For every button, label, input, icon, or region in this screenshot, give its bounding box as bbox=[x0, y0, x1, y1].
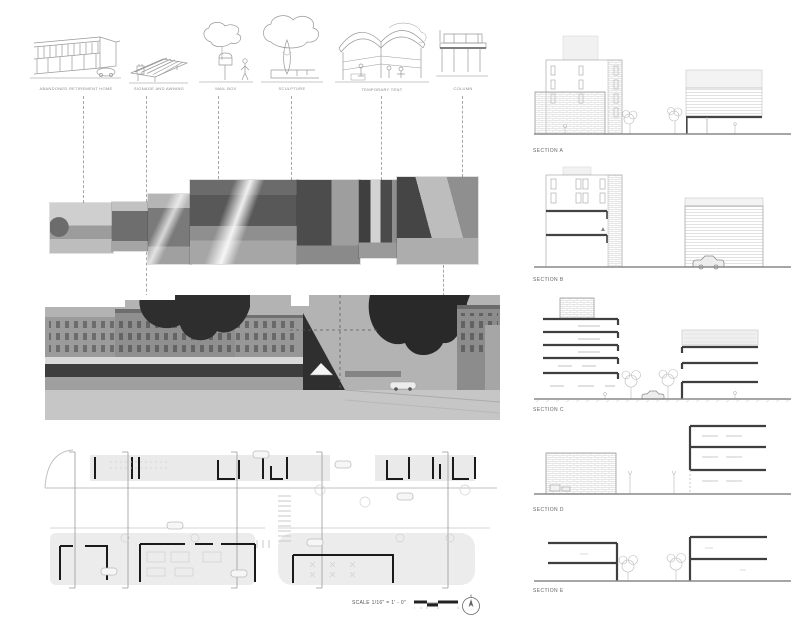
section-c-label: SECTION C bbox=[533, 407, 564, 413]
photo-street-view-right bbox=[397, 177, 478, 264]
sketch-label: ABANDONED RETIREMENT HOME bbox=[30, 86, 122, 91]
guide-line bbox=[83, 96, 84, 203]
sketch-sculpture bbox=[257, 12, 327, 88]
guide-line bbox=[291, 96, 292, 180]
photo-panorama-main-street bbox=[45, 295, 500, 425]
sketch-label: COLUMN bbox=[436, 86, 490, 91]
photo-street-corner-1 bbox=[50, 203, 113, 253]
site-plan-drawing bbox=[35, 440, 505, 603]
section-d-label: SECTION D bbox=[533, 507, 564, 513]
sketch-label: SCULPTURE bbox=[262, 86, 322, 91]
section-b-drawing bbox=[530, 163, 795, 278]
sketch-label: TEMPORARY TENT bbox=[336, 87, 428, 92]
north-arrow-icon bbox=[458, 592, 484, 623]
photo-street-facade-flare bbox=[190, 180, 298, 264]
sketch-temporary-tent bbox=[331, 12, 433, 90]
section-e-drawing bbox=[530, 524, 795, 593]
photo-street-corner-2 bbox=[112, 202, 149, 251]
sketch-column bbox=[434, 24, 492, 86]
section-e-label: SECTION E bbox=[533, 588, 564, 594]
photo-towers-gap bbox=[359, 180, 398, 258]
section-a-drawing bbox=[530, 22, 795, 145]
guide-line bbox=[381, 96, 382, 180]
photo-street-corner-3 bbox=[148, 194, 191, 264]
presentation-board: ABANDONED RETIREMENT HOME SIGNAGE AND AW… bbox=[0, 0, 800, 639]
sketch-signage-and-awning bbox=[127, 50, 191, 88]
guide-line bbox=[146, 96, 147, 202]
section-c-drawing bbox=[530, 296, 795, 411]
sketch-label: MAIL BOX bbox=[196, 86, 256, 91]
section-b-label: SECTION B bbox=[533, 277, 564, 283]
sketch-abandoned-retirement-home bbox=[28, 26, 124, 84]
sketch-mail-box bbox=[195, 20, 257, 86]
plan-scale-label: SCALE 1/16" = 1' - 0" bbox=[352, 600, 406, 606]
guide-line bbox=[146, 252, 147, 297]
graphic-scale-bar bbox=[414, 598, 460, 616]
guide-line bbox=[462, 96, 463, 177]
guide-line bbox=[443, 265, 444, 296]
sketch-label: SIGNAGE AND AWNING bbox=[128, 86, 190, 91]
section-d-drawing bbox=[530, 423, 795, 508]
section-a-label: SECTION A bbox=[533, 148, 563, 154]
photo-dark-building bbox=[297, 180, 360, 264]
